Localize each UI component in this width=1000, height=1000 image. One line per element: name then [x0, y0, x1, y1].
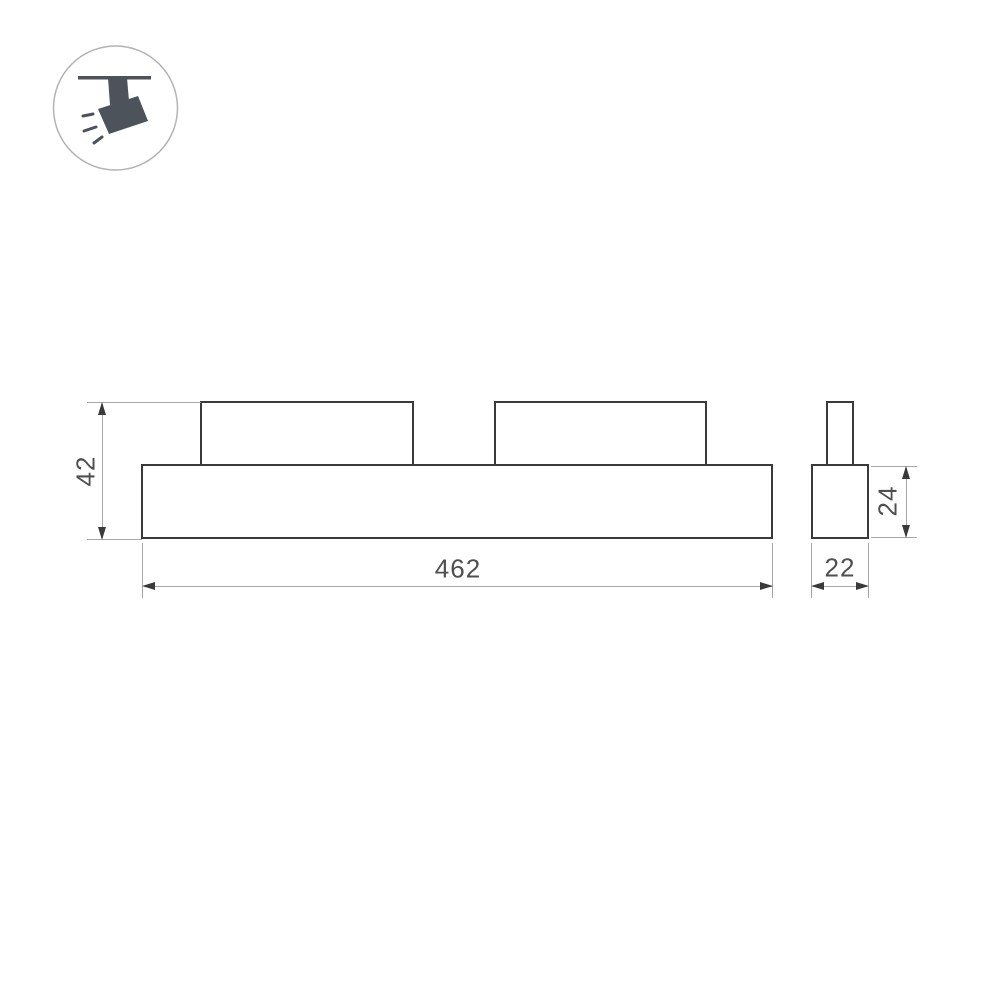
front-view-module-right	[494, 401, 707, 466]
arrowhead-22-left	[811, 582, 824, 590]
ext-line-24-bottom	[871, 537, 917, 538]
dim-label-side-width: 22	[825, 553, 856, 584]
dimension-drawing-canvas: 42 462 24 22	[0, 0, 1000, 1000]
arrowhead-24-down	[902, 525, 910, 538]
dim-label-side-height: 24	[873, 486, 904, 517]
front-view-body	[141, 464, 773, 539]
arrowhead-22-right	[856, 582, 869, 590]
dim-line-42	[102, 404, 103, 538]
arrowhead-24-up	[902, 466, 910, 479]
side-view-stem	[826, 401, 854, 466]
side-view-body	[811, 464, 869, 539]
front-view-module-left	[200, 401, 414, 466]
track-spotlight-svg	[52, 44, 180, 172]
arrowhead-42-down	[98, 527, 106, 540]
dim-label-front-width: 462	[435, 554, 481, 585]
arrowhead-462-right	[760, 582, 773, 590]
arrowhead-42-up	[98, 402, 106, 415]
ext-line-42-bottom	[87, 539, 142, 540]
track-spotlight-icon	[52, 44, 180, 172]
dim-line-462	[144, 586, 772, 587]
arrowhead-462-left	[142, 582, 155, 590]
ext-line-24-top	[871, 466, 917, 467]
dim-label-front-height: 42	[71, 456, 102, 487]
